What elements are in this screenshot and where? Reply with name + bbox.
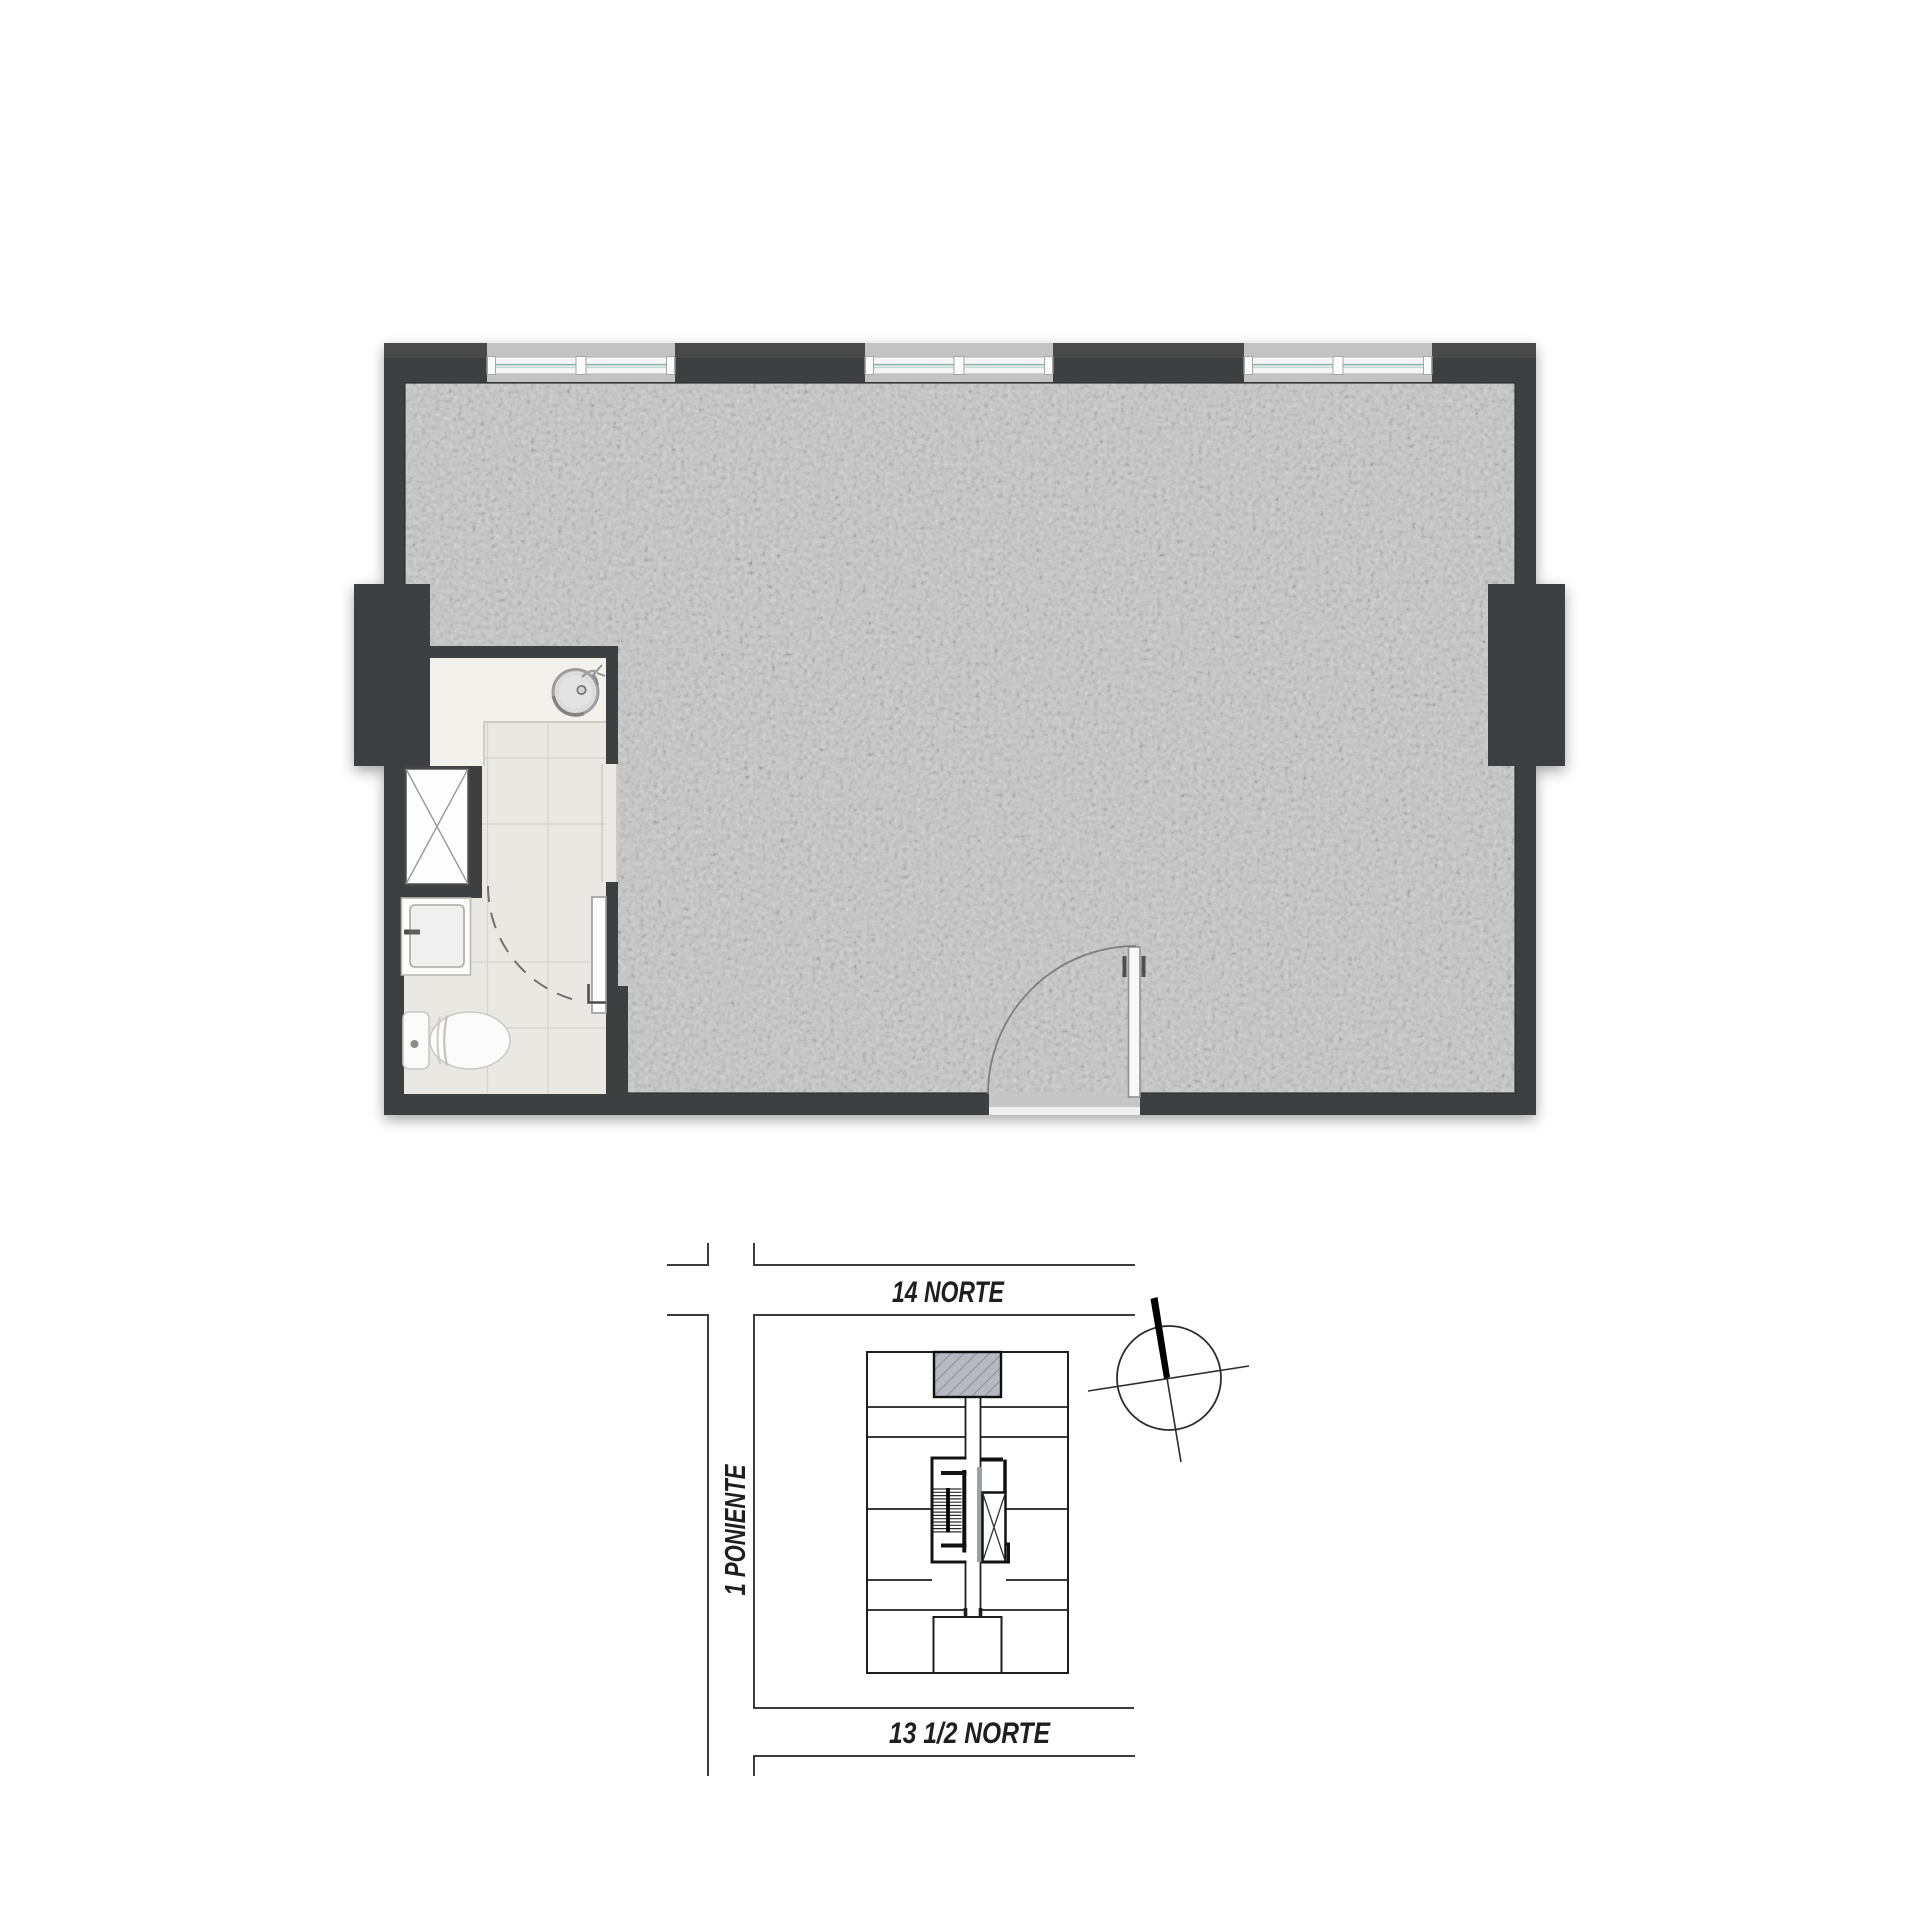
svg-text:1 PONIENTE: 1 PONIENTE: [720, 1463, 752, 1595]
svg-text:13 1/2 NORTE: 13 1/2 NORTE: [889, 1717, 1051, 1750]
svg-text:14 NORTE: 14 NORTE: [892, 1276, 1005, 1309]
